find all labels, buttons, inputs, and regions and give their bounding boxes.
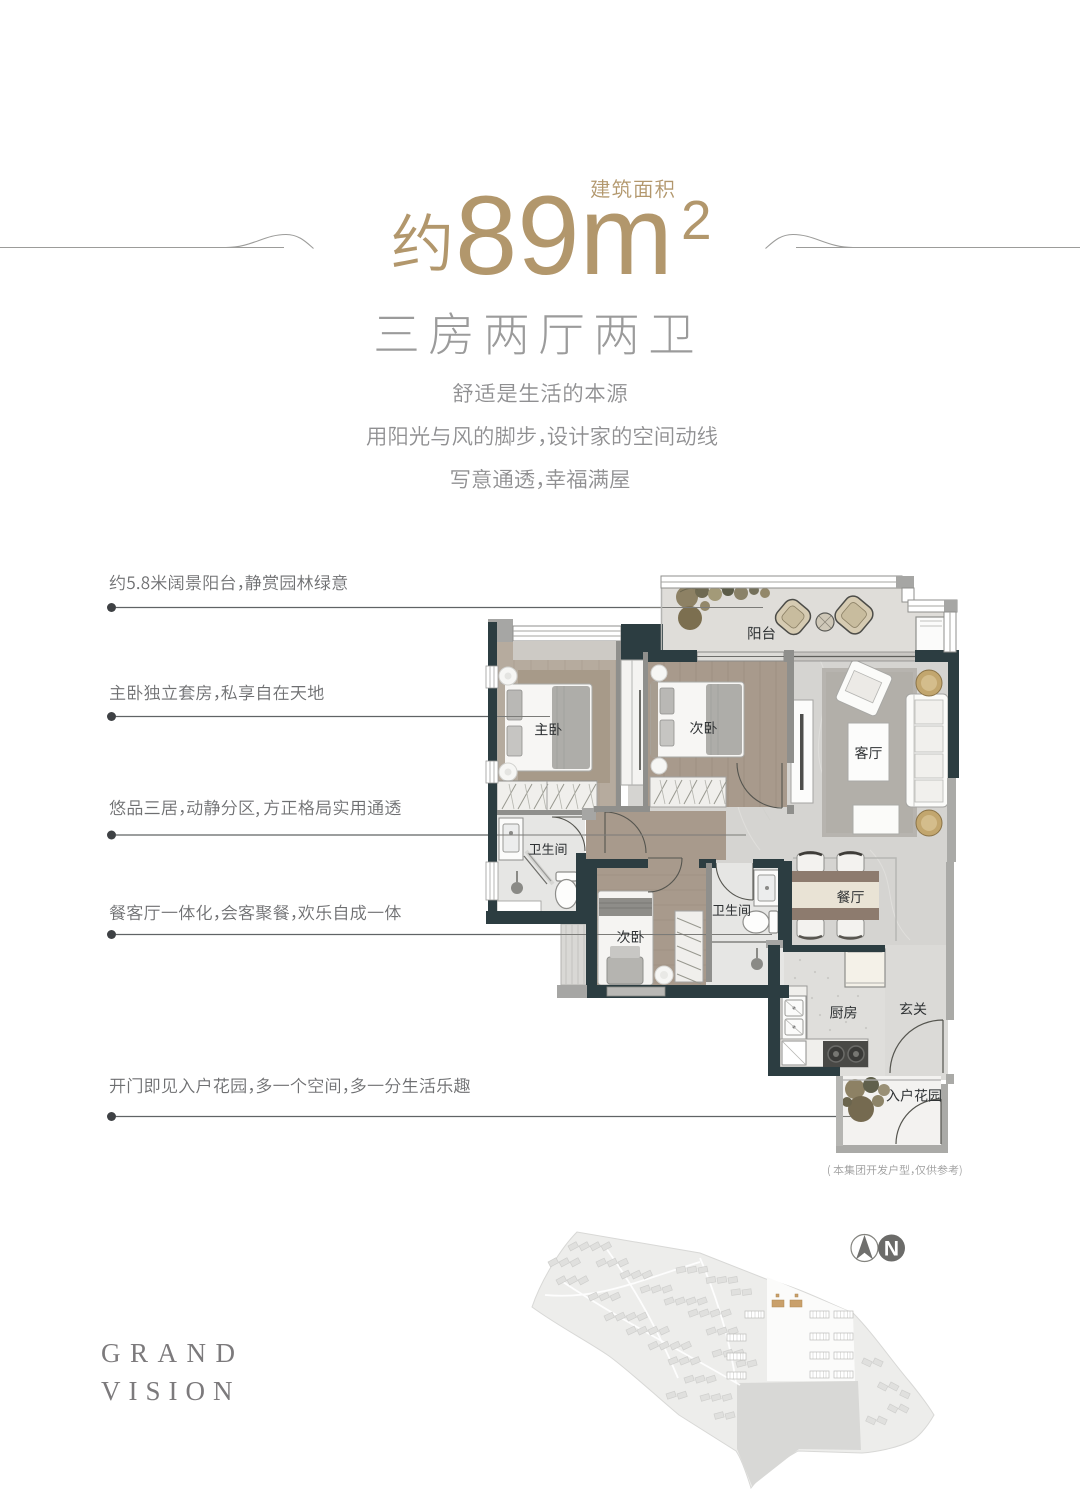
svg-text:VISION: VISION <box>101 1376 241 1406</box>
svg-text:2: 2 <box>681 189 712 251</box>
svg-text:GRAND: GRAND <box>101 1338 245 1368</box>
svg-text:89m: 89m <box>455 173 673 298</box>
svg-text:N: N <box>884 1238 899 1261</box>
